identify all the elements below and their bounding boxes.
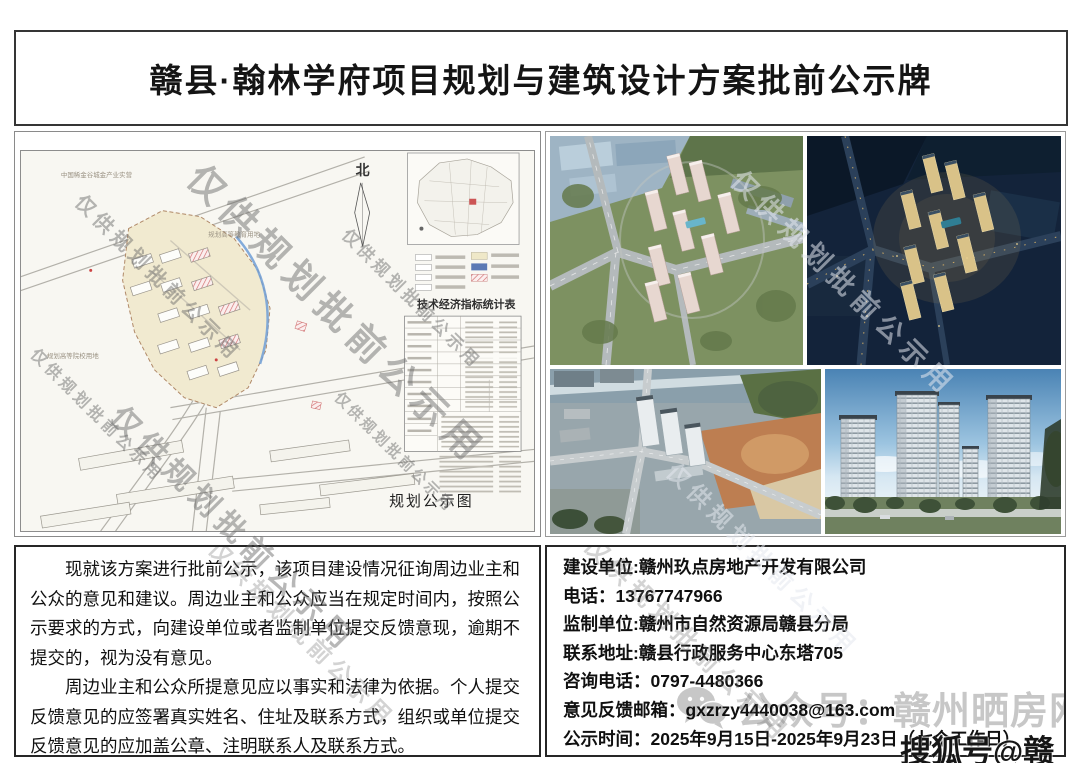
map-caption: 规划公示图: [389, 493, 474, 510]
notice-text-box: 现就该方案进行批前公示，该项目建设情况征询周边业主和公众的意见和建议。周边业主和…: [14, 545, 541, 757]
notice-board-page: 赣县·翰林学府项目规划与建筑设计方案批前公示牌: [0, 0, 1080, 763]
contact-value: 赣县行政服务中心东塔705: [639, 643, 843, 663]
plan-map: 北: [20, 150, 535, 532]
street-view-image: [825, 369, 1061, 534]
contact-line: 咨询电话：0797-4480366: [563, 667, 1064, 696]
map-label-education-left: 规划高等院校用地: [47, 351, 99, 360]
night-aerial-image: [807, 136, 1061, 365]
svg-text:北: 北: [356, 162, 370, 178]
contact-value: 赣州玖点房地产开发有限公司: [639, 557, 867, 577]
rendering-night-aerial: [807, 136, 1061, 365]
map-label-education-center: 规划高等教育用地: [208, 230, 260, 239]
map-label-industry-zone: 中国稀金谷城金产业实营: [61, 170, 133, 179]
notice-paragraph-1: 现就该方案进行批前公示，该项目建设情况征询周边业主和公众的意见和建议。周边业主和…: [30, 555, 525, 673]
contact-line: 意见反馈邮箱：gxzrzy4440038@163.com: [563, 696, 1064, 725]
notice-paragraph-2: 周边业主和公众所提意见应以事实和法律为依据。个人提交反馈意见的应签署真实姓名、住…: [30, 673, 525, 757]
plan-map-panel: 北: [14, 131, 541, 537]
contact-line: 电话：13767747966: [563, 582, 1064, 611]
day-aerial-image: [550, 136, 803, 365]
title-box: 赣县·翰林学府项目规划与建筑设计方案批前公示牌: [14, 30, 1068, 126]
contact-label: 公示时间：: [563, 729, 651, 749]
contact-line: 监制单位:赣州市自然资源局赣县分局: [563, 610, 1064, 639]
svg-text:技术经济指标统计表: 技术经济指标统计表: [417, 297, 517, 311]
contact-label: 咨询电话：: [563, 671, 651, 691]
contact-label: 意见反馈邮箱：: [563, 700, 686, 720]
rendering-day-aerial: [550, 136, 803, 365]
contact-line: 建设单位:赣州玖点房地产开发有限公司: [563, 553, 1064, 582]
contact-value: 赣州市自然资源局赣县分局: [639, 614, 849, 634]
contact-value: 13767747966: [616, 586, 723, 606]
contact-label: 建设单位:: [563, 557, 639, 577]
contact-label: 联系地址:: [563, 643, 639, 663]
rendering-street-view: [825, 369, 1061, 534]
contact-line: 联系地址:赣县行政服务中心东塔705: [563, 639, 1064, 668]
renderings-panel: 仅供规划批前公示用 仅供规划批前公示用: [545, 131, 1066, 537]
contact-label: 监制单位:: [563, 614, 639, 634]
construction-aerial-image: [550, 369, 821, 534]
sohu-watermark: 搜狐号@赣州晒房网: [900, 726, 1080, 763]
rendering-construction-aerial: [550, 369, 821, 534]
contact-label: 电话：: [563, 586, 616, 606]
plan-map-drawing: 北: [21, 151, 534, 531]
contact-value: gxzrzy4440038@163.com: [686, 700, 896, 720]
keymap: [407, 153, 519, 245]
contact-value: 0797-4480366: [651, 671, 764, 691]
page-title: 赣县·翰林学府项目规划与建筑设计方案批前公示牌: [150, 54, 933, 102]
keymap-site-marker: [469, 199, 476, 205]
